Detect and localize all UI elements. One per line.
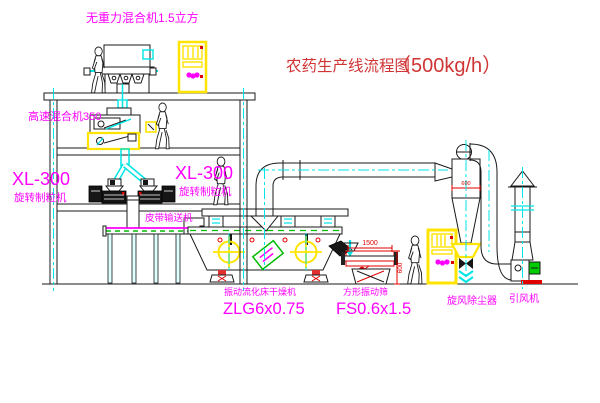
control-cabinet-ground	[428, 230, 456, 283]
label-dryer-model: ZLG6x0.75	[223, 300, 305, 318]
granulator-right	[138, 179, 175, 203]
dim-cyclone: 600	[461, 181, 470, 187]
label-belt-conveyor: 皮带输送机	[145, 212, 193, 224]
control-cabinet-top	[179, 42, 206, 92]
indicator-dot	[450, 236, 453, 239]
label-sieve-model: FS0.6x1.5	[336, 300, 411, 318]
indicator-dot	[200, 75, 203, 78]
person-figure	[408, 236, 422, 284]
indicator-dot	[451, 261, 454, 264]
flow-diagram-canvas: 无重力混合机1.5立方 高速混合机350 XL-300 旋转制粒机 XL-300…	[0, 0, 600, 403]
diagram-title-capacity: （500kg/h）	[391, 54, 502, 77]
dim-sieve-height: 600	[397, 262, 404, 273]
label-fan: 引风机	[509, 292, 539, 305]
diagram-svg: 无重力混合机1.5立方 高速混合机350 XL-300 旋转制粒机 XL-300…	[0, 0, 600, 403]
induced-draft-fan-machine	[508, 171, 542, 284]
high-speed-mixer-machine	[88, 100, 156, 149]
dim-sieve-length: 1500	[362, 240, 378, 247]
fan-base	[521, 280, 542, 284]
belt-conveyor-machine	[103, 226, 204, 283]
granulator-left	[89, 179, 126, 203]
label-xl300-left-name: 旋转制粒机	[14, 191, 67, 204]
dryer-feet	[210, 270, 328, 282]
label-xl300-right-name: 旋转制粒机	[179, 185, 232, 198]
label-xl300-right-model: XL-300	[175, 163, 233, 183]
label-gravity-mixer: 无重力混合机1.5立方	[86, 10, 199, 25]
discharge-duct	[127, 196, 139, 228]
label-cyclone: 旋风除尘器	[447, 294, 497, 307]
indicator-dot	[200, 46, 203, 49]
label-high-speed-mixer: 高速混合机350	[28, 109, 101, 123]
person-figure	[156, 103, 170, 149]
dryer-exhaust-duct	[251, 160, 435, 231]
label-sieve-name: 方形振动筛	[343, 286, 388, 297]
label-dryer-name: 振动流化床干燥机	[224, 286, 296, 297]
label-xl300-left-model: XL-300	[12, 169, 70, 189]
